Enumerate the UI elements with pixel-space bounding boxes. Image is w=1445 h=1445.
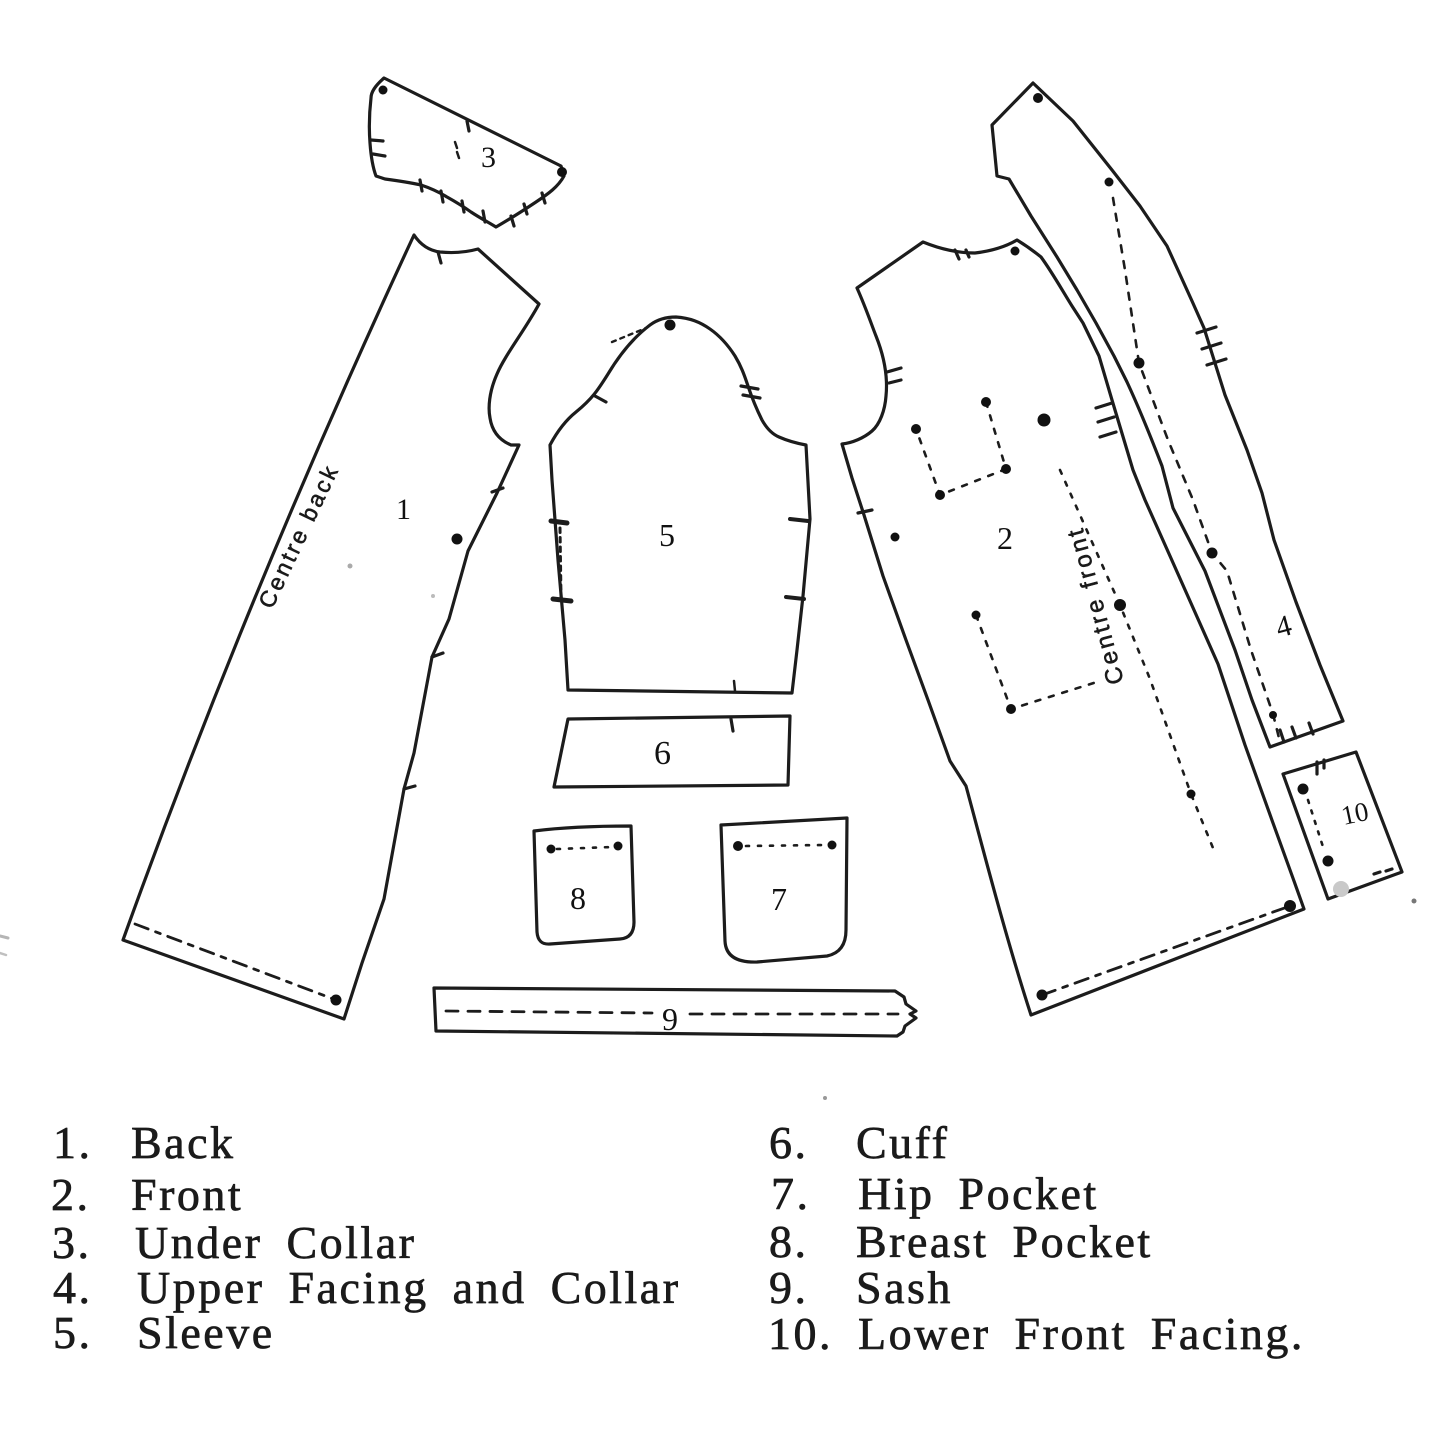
svg-text:Breast Pocket: Breast Pocket [856, 1216, 1153, 1267]
svg-text:3.: 3. [52, 1217, 92, 1268]
svg-text:6: 6 [654, 735, 671, 772]
svg-text:1: 1 [396, 493, 411, 526]
svg-text:Lower Front Facing.: Lower Front Facing. [858, 1308, 1305, 1359]
svg-text:Sash: Sash [856, 1262, 953, 1313]
svg-text:Cuff: Cuff [856, 1117, 950, 1168]
svg-text:8: 8 [570, 880, 586, 916]
svg-text:9: 9 [662, 1001, 678, 1037]
svg-text:6.: 6. [769, 1117, 809, 1168]
svg-text:4.: 4. [53, 1262, 93, 1313]
svg-text:2: 2 [997, 520, 1013, 556]
svg-text:5.: 5. [53, 1307, 93, 1358]
svg-text:1.: 1. [53, 1117, 93, 1168]
svg-text:7: 7 [771, 881, 787, 917]
svg-text:Front: Front [131, 1169, 243, 1220]
svg-text:Hip Pocket: Hip Pocket [858, 1168, 1099, 1219]
svg-text:2.: 2. [51, 1169, 91, 1220]
svg-text:Upper Facing and Collar: Upper Facing and Collar [137, 1262, 681, 1313]
svg-text:5: 5 [659, 517, 675, 553]
svg-text:7.: 7. [771, 1168, 811, 1219]
svg-text:Back: Back [131, 1117, 236, 1168]
svg-text:3: 3 [481, 141, 496, 174]
svg-text:Sleeve: Sleeve [137, 1307, 275, 1358]
svg-text:10.: 10. [768, 1308, 833, 1359]
svg-text:Under Collar: Under Collar [135, 1217, 416, 1268]
svg-text:8.: 8. [769, 1216, 809, 1267]
svg-text:9.: 9. [769, 1262, 809, 1313]
